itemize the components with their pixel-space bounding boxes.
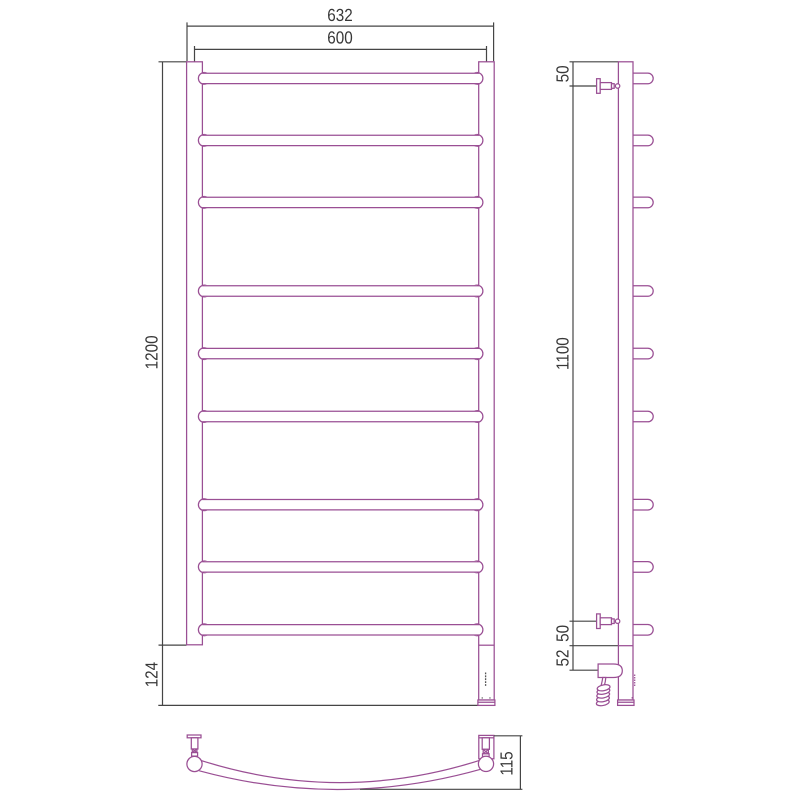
- svg-text:124: 124: [142, 662, 162, 688]
- svg-text:50: 50: [552, 625, 572, 642]
- svg-text:600: 600: [327, 28, 353, 48]
- svg-text:115: 115: [497, 751, 517, 775]
- svg-text:1100: 1100: [553, 337, 573, 370]
- svg-text:632: 632: [327, 5, 352, 25]
- svg-text:52: 52: [552, 650, 572, 667]
- svg-text:1200: 1200: [142, 335, 162, 369]
- svg-text:50: 50: [552, 65, 572, 82]
